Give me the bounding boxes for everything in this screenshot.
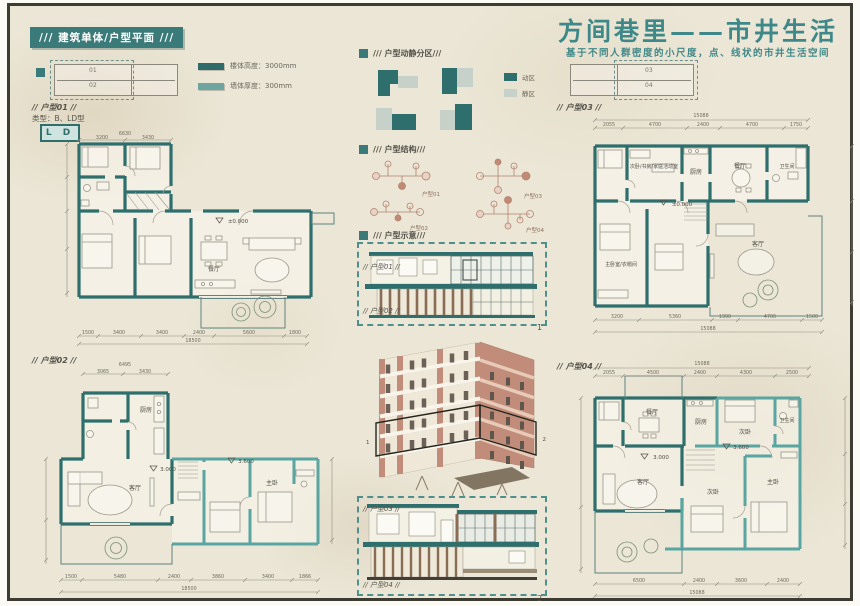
axon-building-render: 1 2	[362, 326, 548, 496]
plan-04-room-bath: 卫生间	[779, 417, 794, 424]
section2-mid-slab	[363, 542, 539, 547]
dim-label: 2400	[697, 122, 709, 128]
plan-02-dim-bottom-total: 18500	[181, 586, 196, 592]
section2-bottom-label: // 户型04 //	[363, 580, 400, 590]
plan-04-room-living: 客厅	[637, 478, 649, 486]
plan-02-level-b: 3.600	[238, 459, 254, 465]
plan-03-drawing: ±0.000 次卧/书房/家庭活动室 厨房 餐厅 卫生间 主卧室/衣帽间 客厅 …	[560, 104, 860, 339]
plan-01-drawing: ±0.000 餐厅 6630 3200 3430 1500 3400 3400 …	[35, 130, 340, 348]
quiet-zone-swatch	[504, 89, 517, 97]
legend-wall-thickness-label: 墙体厚度：300mm	[230, 81, 292, 91]
dim-label: 2400	[193, 330, 205, 336]
plan-04-plants	[617, 539, 658, 562]
keyplan-right-highlight	[614, 60, 698, 100]
plan-04-dim-top-total: 15088	[694, 361, 709, 367]
dim-label: 2400	[693, 578, 705, 584]
dim-label: 3200	[611, 314, 623, 320]
plan-03-room-multi: 次卧/书房/家庭活动室	[630, 163, 678, 170]
structure-section-title: /// 户型结构///	[359, 144, 425, 155]
section2-top-label: // 户型03 //	[363, 504, 400, 514]
dim-label: 1866	[299, 574, 311, 580]
plan-04-drawing: 3.000 3.600 餐厅 厨房 次卧 卫生间 客厅 次卧 主卧 15088 …	[555, 356, 860, 606]
dim-label: 2400	[694, 370, 706, 376]
zoning-legend-active: 动区	[504, 72, 535, 82]
dim-label: 4700	[649, 122, 661, 128]
dim-label: 4500	[647, 370, 659, 376]
section1-mid-slab	[365, 284, 537, 289]
dim-label: 5360	[669, 314, 681, 320]
page-title: 方间巷里——市井生活	[550, 12, 846, 48]
plan-01-type-note: 类型：B、LD型	[32, 113, 85, 124]
structure-label-3: 户型03	[524, 192, 542, 200]
presentation-board: /// 建筑单体/户型平面 /// 方间巷里——市井生活 基于不同人群密度的小尺…	[0, 0, 860, 606]
legend-wall-thickness: 墙体厚度：300mm	[198, 81, 292, 91]
plan-03-room-bath: 卫生间	[779, 163, 794, 170]
zoning-shape-1	[378, 70, 418, 96]
plan-04-dim-bottom-total: 15088	[689, 590, 704, 596]
dim-label: 2055	[603, 122, 615, 128]
structure-diagram-3	[477, 159, 531, 194]
plan-01-plants	[232, 296, 276, 321]
axon-marker-left: 1	[366, 440, 370, 446]
keyplan-bullet-icon	[36, 68, 45, 77]
dim-label: 3430	[139, 369, 151, 375]
section2-index: 2	[537, 594, 542, 603]
legend-wall-height: 楼体高度：3000mm	[198, 61, 296, 71]
keyplan-left-highlight	[50, 60, 134, 100]
dim-label: 5600	[243, 330, 255, 336]
legend-bar-dark	[198, 63, 224, 70]
zoning-diagrams	[368, 64, 496, 142]
axon-marker-right: 2	[543, 437, 547, 443]
plan-03-room-dining: 餐厅	[734, 162, 746, 170]
structure-diagram-2	[371, 201, 424, 221]
dim-label: 6500	[633, 578, 645, 584]
zoning-bullet-icon	[359, 49, 368, 58]
plan-02-level-a: 3.000	[160, 467, 176, 473]
section-drawing-box-1: // 户型01 // // 户型02 //	[357, 242, 547, 326]
dim-label: 1500	[65, 574, 77, 580]
dim-label: 2055	[603, 370, 615, 376]
dim-label: 3430	[142, 135, 154, 141]
section1-top-label: // 户型01 //	[363, 262, 400, 272]
schematic-section-title: /// 户型示意///	[359, 230, 425, 241]
dim-label: 4700	[764, 314, 776, 320]
plan-04-level-b: 3.600	[733, 445, 749, 451]
plan-03-room-living: 客厅	[752, 240, 764, 248]
axon-ground	[416, 467, 530, 496]
dim-label: 2500	[786, 370, 798, 376]
zoning-section-title: /// 户型动静分区///	[359, 48, 441, 59]
plan-03-plants	[743, 280, 778, 307]
legend-bar-light	[198, 83, 224, 90]
schematic-bullet-icon	[359, 231, 368, 240]
plan-03-level-text: ±0.000	[672, 202, 693, 208]
section2-lower-floor	[367, 547, 537, 580]
legend-wall-height-label: 楼体高度：3000mm	[230, 61, 296, 71]
zoning-shape-3	[376, 108, 416, 130]
dim-label: 1800	[289, 330, 301, 336]
plan-02-drawing: 3.000 3.600 客厅 厨房 主卧 6495 3065 3430 1500…	[32, 352, 347, 604]
dim-label: 2400	[777, 578, 789, 584]
structure-title-text: /// 户型结构///	[373, 144, 425, 155]
plan-04-room-dining: 餐厅	[646, 408, 658, 416]
plan-04-room-bed3: 次卧	[707, 488, 719, 496]
plan-04-room-bed2: 次卧	[739, 428, 751, 436]
dim-label: 3400	[156, 330, 168, 336]
structure-label-1: 户型01	[422, 190, 440, 198]
plan-03-room-kitchen: 厨房	[690, 168, 702, 176]
board-frame: /// 建筑单体/户型平面 /// 方间巷里——市井生活 基于不同人群密度的小尺…	[7, 3, 853, 601]
structure-diagram-4	[477, 197, 534, 230]
structure-diagrams: 户型01 户型02 户型03 户型04	[362, 156, 546, 232]
zoning-legend-quiet: 静区	[504, 88, 535, 98]
dim-label: 4700	[746, 122, 758, 128]
dim-label: 1500	[82, 330, 94, 336]
section1-bottom-label: // 户型02 //	[363, 306, 400, 316]
structure-bullet-icon	[359, 145, 368, 154]
plan-02-room-master: 主卧	[266, 479, 278, 487]
plan-01-level-text: ±0.000	[228, 219, 249, 225]
dim-label: 3860	[212, 574, 224, 580]
plan-04-room-kitchen: 厨房	[695, 418, 707, 426]
plan-01-dim-bottom-total: 18500	[185, 338, 200, 344]
quiet-zone-label: 静区	[522, 88, 535, 98]
page-subtitle: 基于不同人群密度的小尺度，点、线状的市井生活空间	[550, 45, 846, 59]
plan-04-level-a: 3.000	[653, 455, 669, 461]
dim-label: 1750	[790, 122, 802, 128]
plan-02-plants	[105, 537, 127, 559]
plan-02-room-kitchen: 厨房	[140, 406, 152, 414]
plan-04-room-master: 主卧	[767, 478, 779, 486]
dim-label: 3200	[96, 135, 108, 141]
dim-label: 1900	[719, 314, 731, 320]
plan-01-header: // 户型01 //	[32, 102, 76, 113]
structure-diagram-1	[373, 161, 431, 190]
plan-03-dim-top-total: 15088	[693, 113, 708, 119]
plan-02-patio	[61, 523, 172, 565]
structure-label-4: 户型04	[526, 226, 544, 234]
zoning-title-text: /// 户型动静分区///	[373, 48, 441, 59]
plan-03-dim-bottom-total: 15088	[700, 326, 715, 332]
dim-label: 3065	[97, 369, 109, 375]
dim-label: 3400	[113, 330, 125, 336]
plan-02-dim-top-total: 6495	[119, 362, 131, 368]
section-header-badge: /// 建筑单体/户型平面 ///	[30, 27, 183, 48]
section-drawing-box-2: // 户型03 // // 户型04 //	[357, 496, 547, 596]
zoning-shape-4	[440, 104, 472, 130]
plan-03-room-master: 主卧室/衣帽间	[605, 261, 637, 268]
plan-01-dim-top-total: 6630	[119, 131, 131, 137]
active-zone-swatch	[504, 73, 517, 81]
dim-label: 5480	[114, 574, 126, 580]
dim-label: 1500	[806, 314, 818, 320]
plan-01-room-dining: 餐厅	[208, 265, 220, 273]
active-zone-label: 动区	[522, 72, 535, 82]
schematic-title-text: /// 户型示意///	[373, 230, 425, 241]
zoning-legend: 动区 静区	[504, 72, 535, 104]
dim-label: 3600	[735, 578, 747, 584]
dim-label: 4300	[740, 370, 752, 376]
zoning-shape-2	[442, 68, 473, 94]
dim-label: 3400	[262, 574, 274, 580]
plan-02-room-living: 客厅	[129, 484, 141, 492]
dim-label: 2400	[168, 574, 180, 580]
